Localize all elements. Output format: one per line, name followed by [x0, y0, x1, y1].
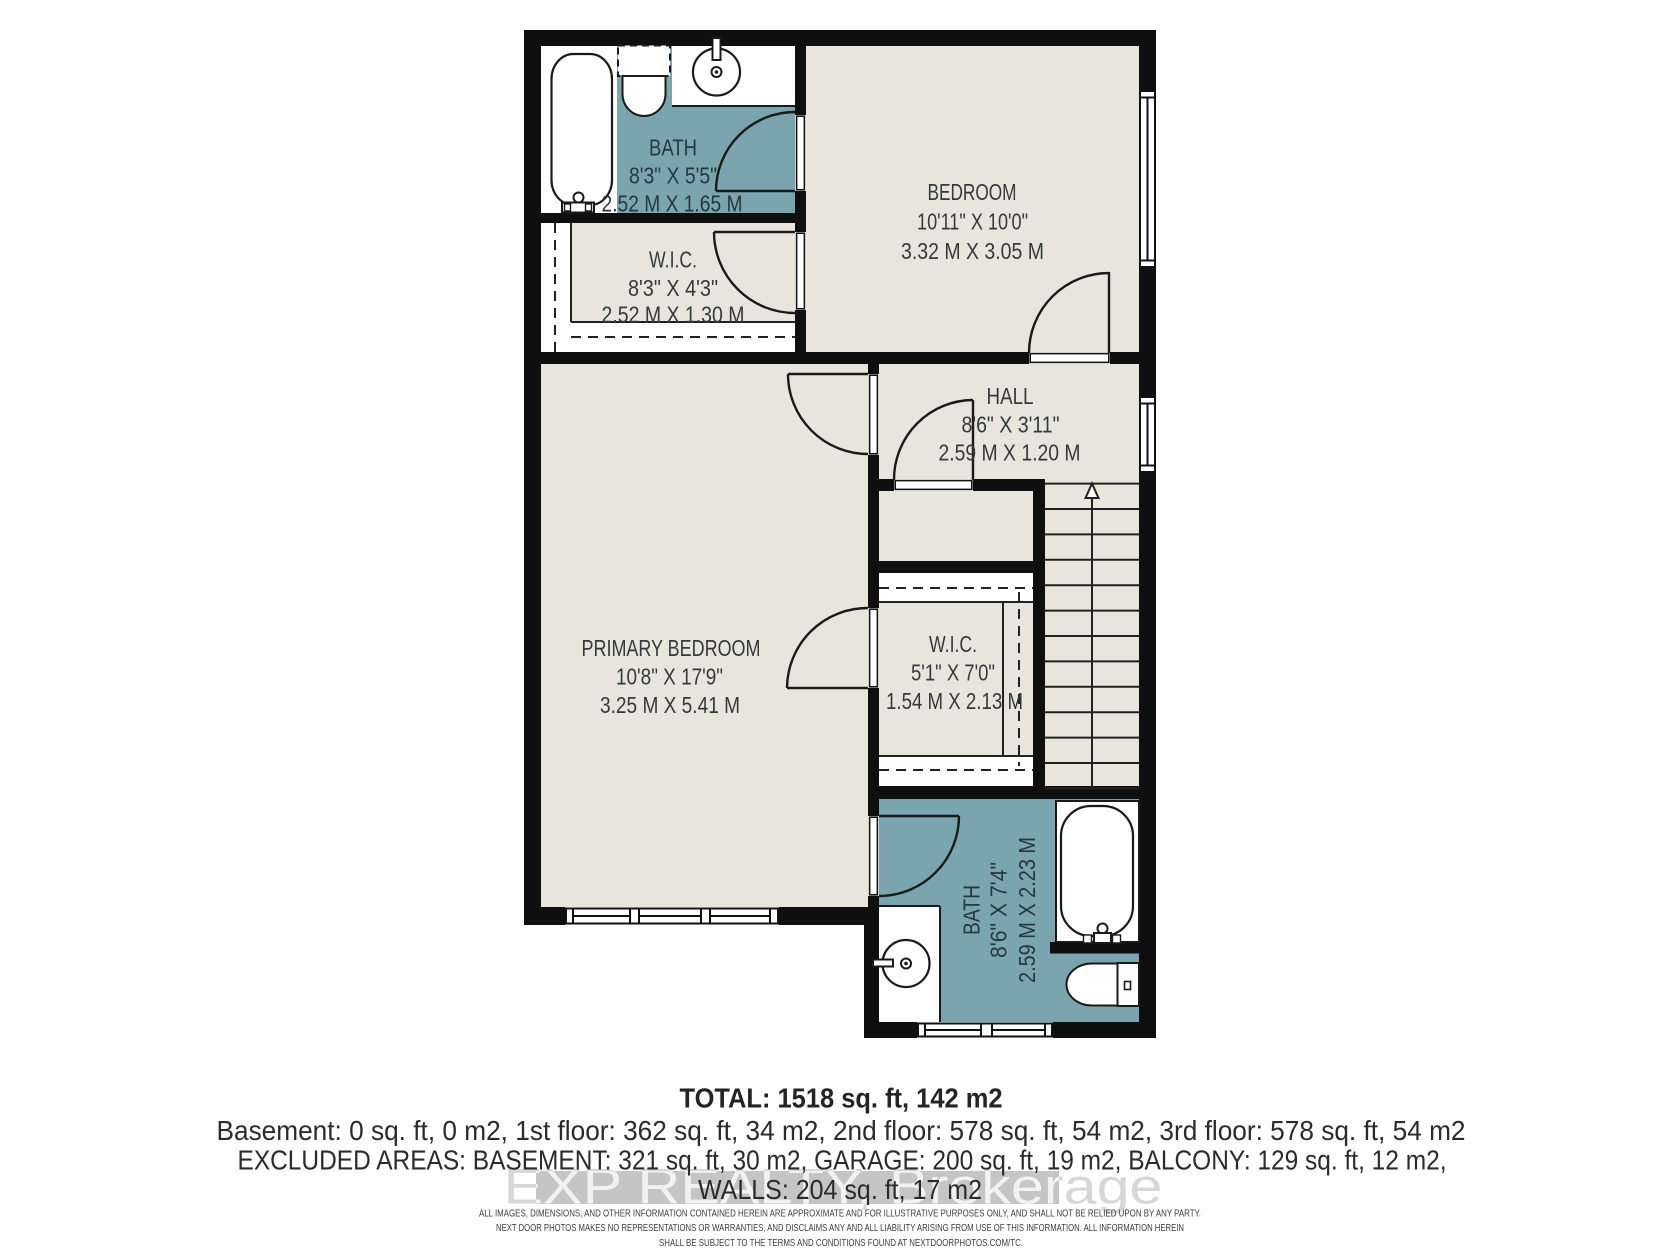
svg-text:ALL IMAGES, DIMENSIONS, AND OT: ALL IMAGES, DIMENSIONS, AND OTHER INFORM…: [479, 1208, 1201, 1220]
svg-text:2.59 M X 2.23 M: 2.59 M X 2.23 M: [1014, 837, 1040, 983]
svg-text:BEDROOM: BEDROOM: [928, 179, 1017, 205]
svg-text:1.54 M X 2.13 M: 1.54 M X 2.13 M: [886, 688, 1023, 714]
svg-text:10'8" X 17'9": 10'8" X 17'9": [616, 664, 723, 690]
svg-text:WALLS: 204 sq. ft, 17 m2: WALLS: 204 sq. ft, 17 m2: [698, 1174, 982, 1205]
svg-text:2.52 M X 1.65 M: 2.52 M X 1.65 M: [602, 191, 743, 217]
svg-text:2.52 M X 1.30 M: 2.52 M X 1.30 M: [602, 302, 745, 328]
svg-text:8'3" X 5'5": 8'3" X 5'5": [629, 163, 717, 189]
svg-text:NEXT DOOR PHOTOS MAKES NO REPR: NEXT DOOR PHOTOS MAKES NO REPRESENTATION…: [496, 1222, 1184, 1234]
svg-text:3.25 M X 5.41 M: 3.25 M X 5.41 M: [600, 692, 740, 718]
svg-text:SHALL BE SUBJECT TO THE TERMS: SHALL BE SUBJECT TO THE TERMS AND CONDIT…: [659, 1237, 1023, 1249]
svg-text:8'6" X 3'11": 8'6" X 3'11": [962, 411, 1060, 437]
svg-text:Basement: 0 sq. ft, 0 m2, 1st: Basement: 0 sq. ft, 0 m2, 1st floor: 362…: [217, 1115, 1466, 1146]
svg-text:BATH: BATH: [649, 135, 697, 161]
svg-text:3.32 M X 3.05 M: 3.32 M X 3.05 M: [901, 238, 1044, 264]
svg-text:2.59 M X 1.20 M: 2.59 M X 1.20 M: [939, 440, 1081, 466]
svg-text:HALL: HALL: [987, 383, 1034, 409]
svg-text:8'6" X 7'4": 8'6" X 7'4": [986, 862, 1012, 958]
svg-text:5'1" X 7'0": 5'1" X 7'0": [911, 660, 995, 686]
svg-text:BATH: BATH: [958, 885, 984, 935]
svg-text:PRIMARY BEDROOM: PRIMARY BEDROOM: [582, 635, 761, 661]
svg-text:W.I.C.: W.I.C.: [649, 247, 697, 273]
svg-text:8'3" X 4'3": 8'3" X 4'3": [628, 275, 718, 301]
svg-text:TOTAL: 1518 sq. ft, 142 m2: TOTAL: 1518 sq. ft, 142 m2: [680, 1083, 1003, 1114]
svg-text:10'11" X 10'0": 10'11" X 10'0": [917, 209, 1028, 235]
svg-text:W.I.C.: W.I.C.: [929, 631, 977, 657]
svg-text:EXCLUDED AREAS: BASEMENT: 321: EXCLUDED AREAS: BASEMENT: 321 sq. ft, 30…: [238, 1145, 1447, 1176]
